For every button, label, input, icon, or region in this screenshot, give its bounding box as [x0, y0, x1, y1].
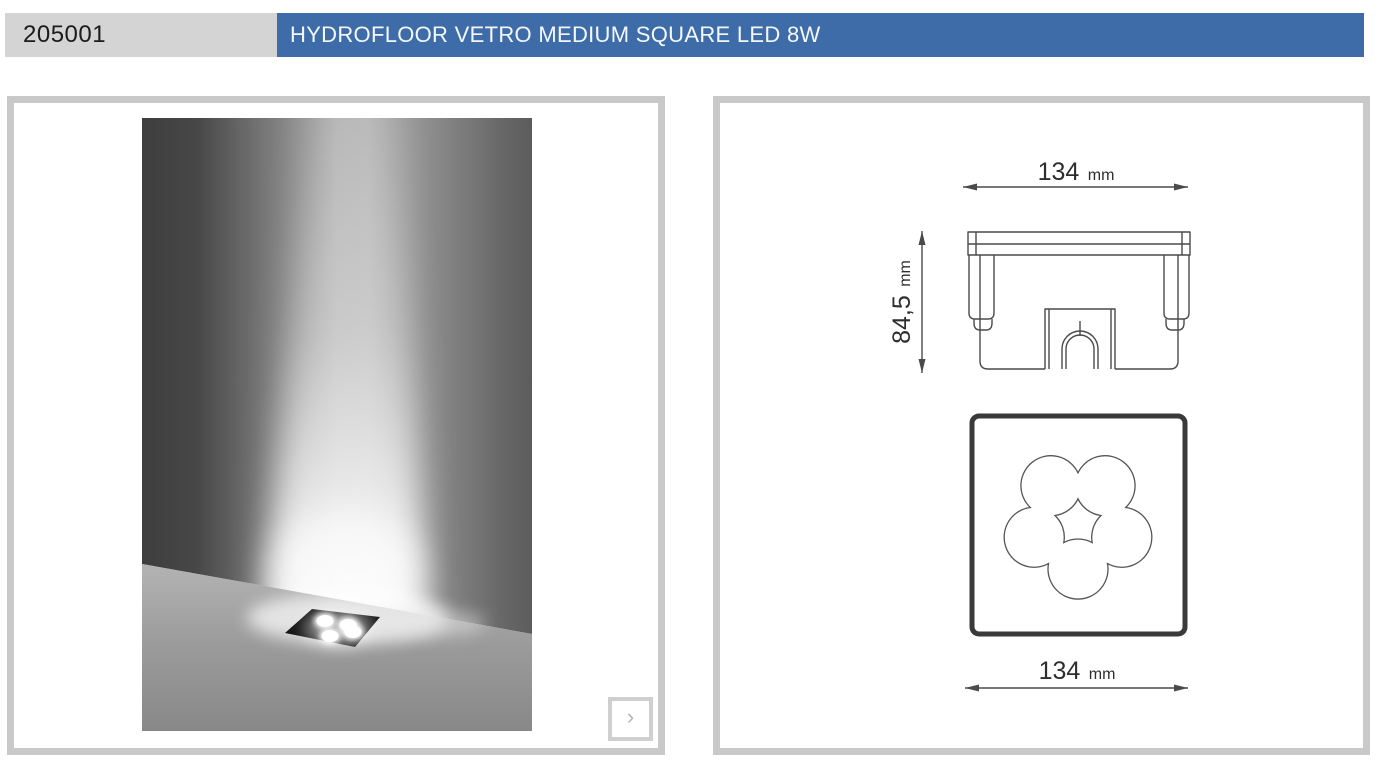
product-code: 205001	[5, 13, 277, 57]
dim-top-width: 134 mm	[1038, 158, 1115, 186]
technical-drawing: 134 mm 84,5 mm 134 mm	[720, 103, 1363, 748]
photo-panel: ›	[7, 96, 665, 755]
side-view	[968, 232, 1190, 369]
next-image-button[interactable]: ›	[608, 697, 653, 741]
drawing-panel: 134 mm 84,5 mm 134 mm	[713, 96, 1370, 755]
product-title: HYDROFLOOR VETRO MEDIUM SQUARE LED 8W	[277, 13, 1364, 57]
dim-bottom-width: 134 mm	[1039, 657, 1116, 685]
product-photo	[142, 118, 532, 731]
dim-side-height: 84,5 mm	[888, 260, 916, 344]
face-view	[972, 416, 1185, 634]
chevron-right-icon: ›	[627, 706, 634, 728]
